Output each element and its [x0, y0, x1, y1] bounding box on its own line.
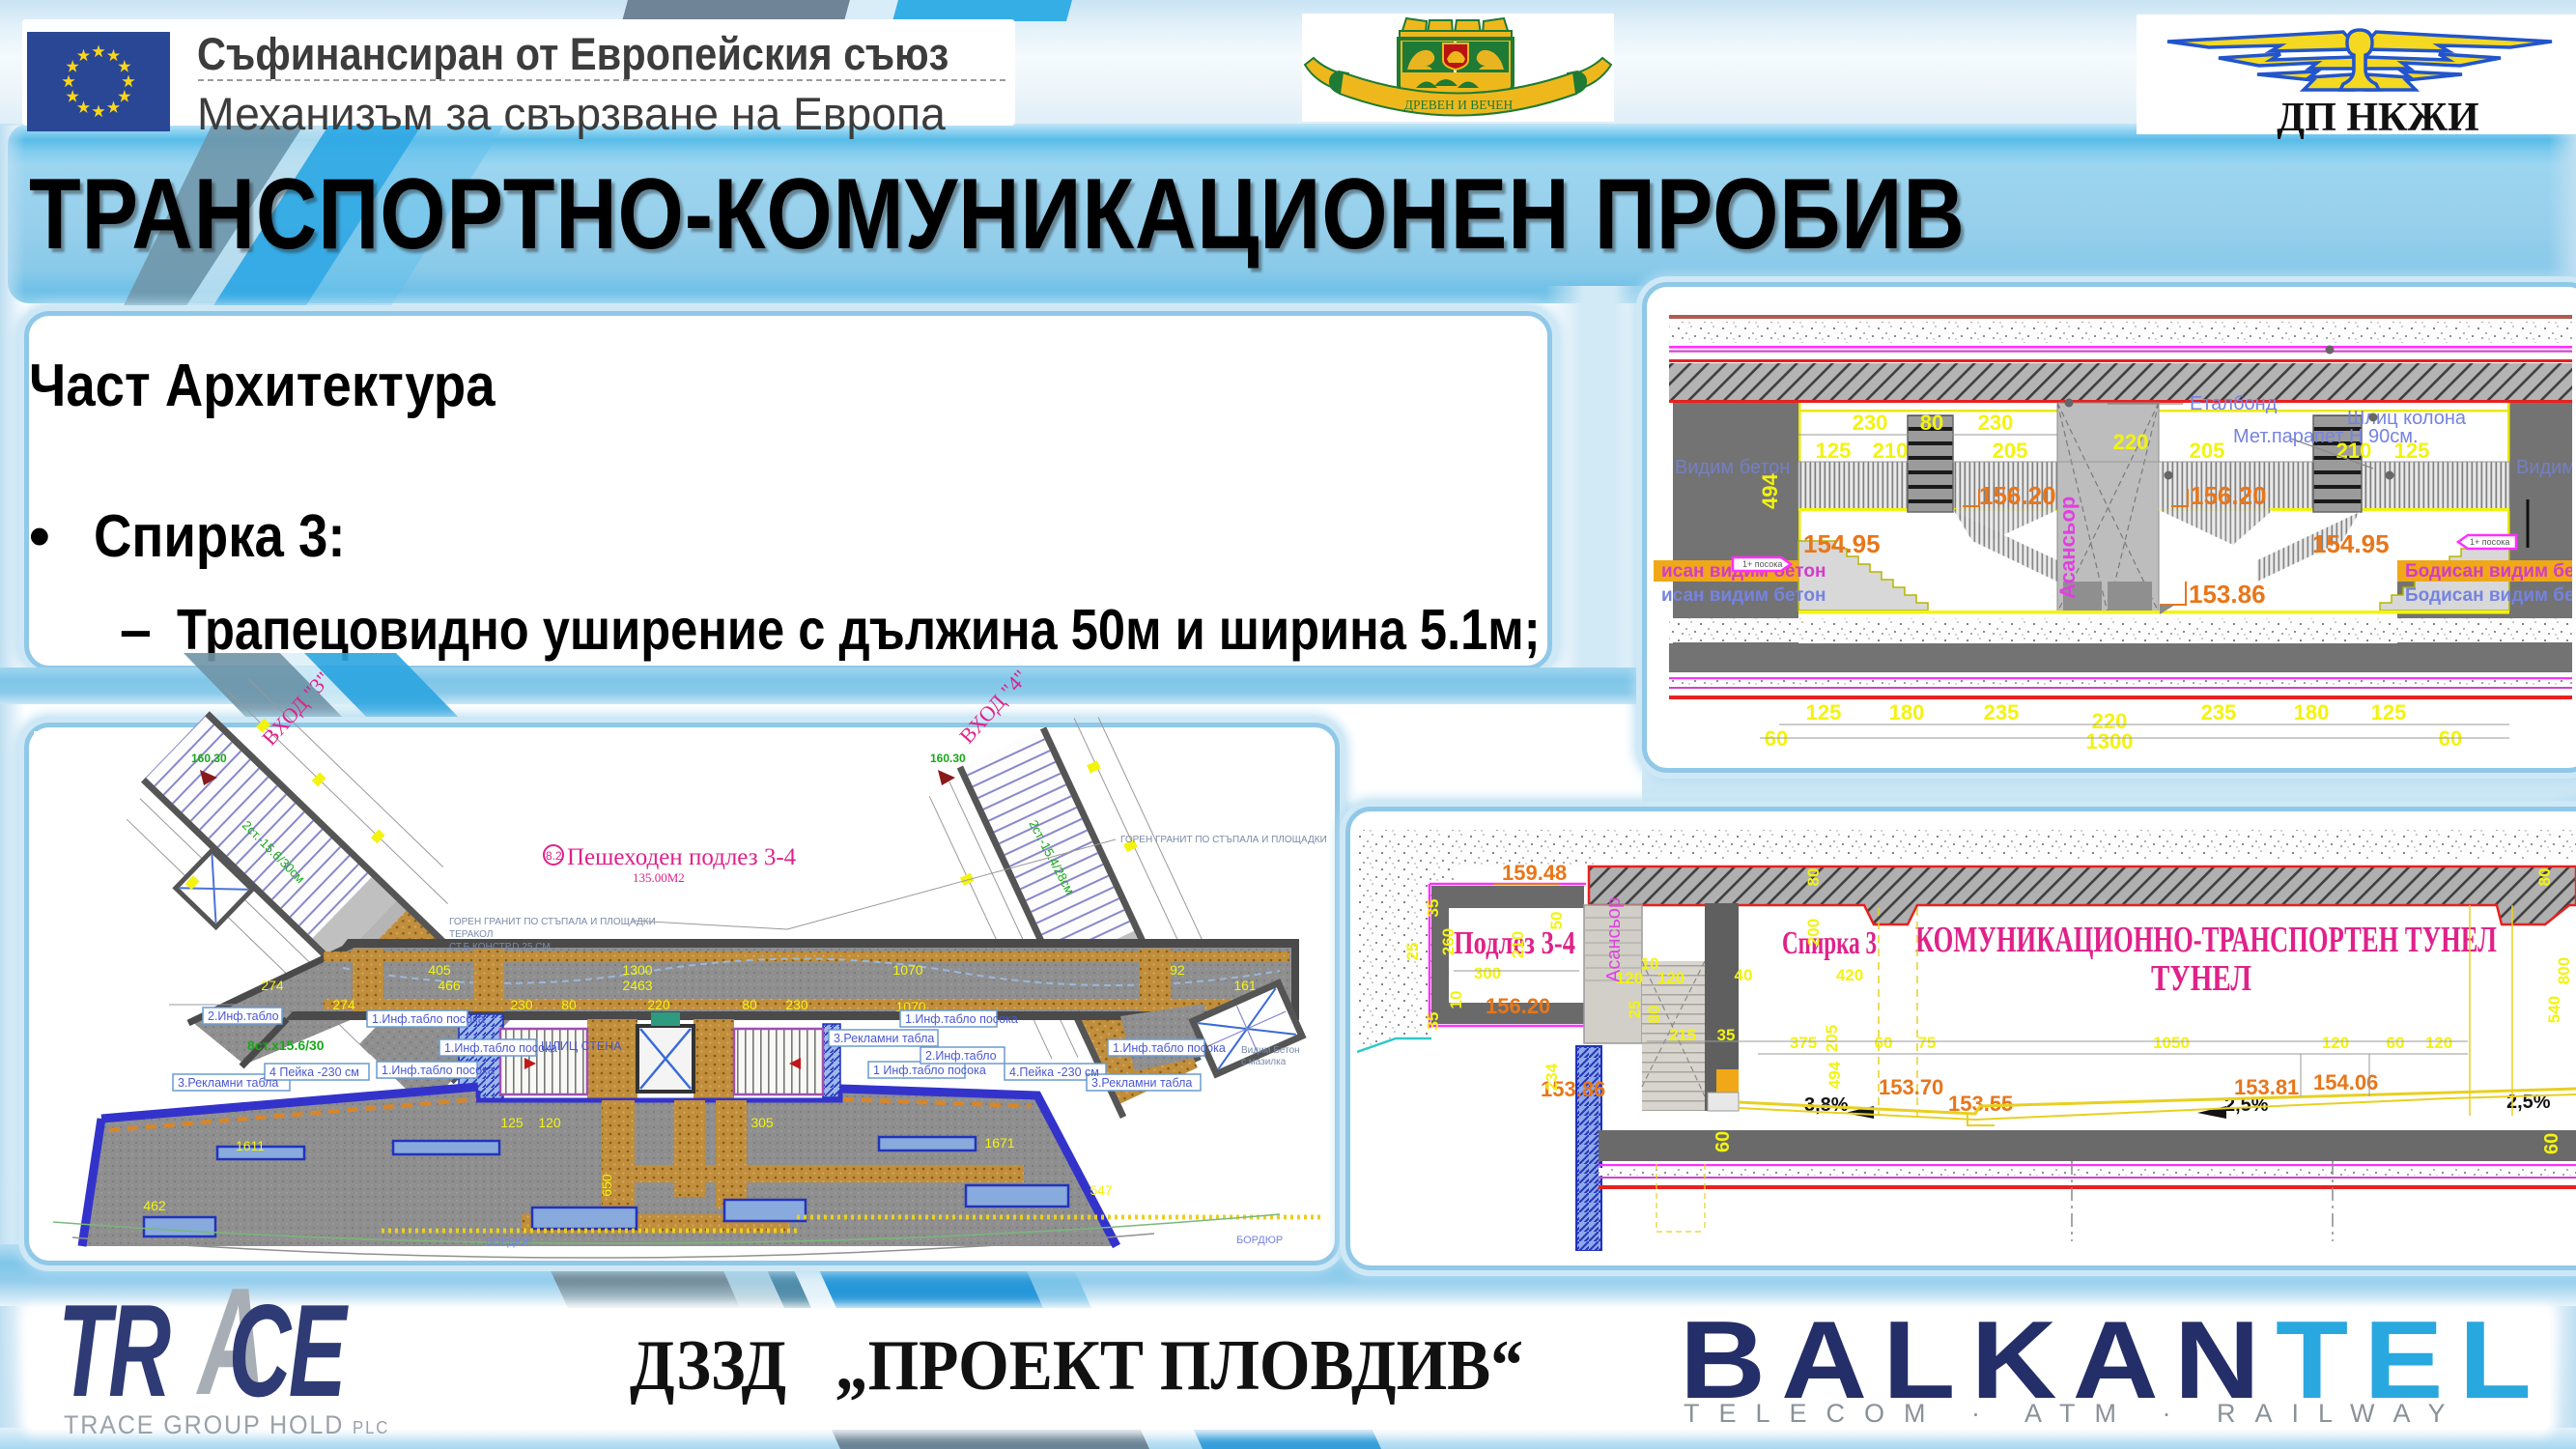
svg-text:80: 80 — [1804, 868, 1823, 887]
svg-text:260: 260 — [1439, 928, 1458, 955]
svg-text:1.Инф.табло посока: 1.Инф.табло посока — [905, 1012, 1018, 1026]
svg-text:ЩЛИЦ СТЕНА: ЩЛИЦ СТЕНА — [541, 1039, 622, 1053]
svg-text:800: 800 — [2555, 957, 2573, 984]
svg-text:159.48: 159.48 — [1502, 861, 1567, 885]
svg-text:120: 120 — [2425, 1034, 2452, 1052]
svg-text:420: 420 — [1836, 966, 1863, 984]
svg-text:35: 35 — [1424, 899, 1442, 918]
svg-text:200: 200 — [1804, 919, 1823, 946]
svg-text:Пешеходен подлез 3-4: Пешеходен подлез 3-4 — [567, 844, 797, 870]
svg-text:1.Инф.табло посока: 1.Инф.табло посока — [372, 1012, 485, 1026]
svg-text:1070: 1070 — [892, 962, 922, 978]
svg-text:125: 125 — [2371, 700, 2407, 724]
svg-text:235: 235 — [2201, 700, 2237, 724]
svg-text:3.Рекламни табла: 3.Рекламни табла — [178, 1076, 278, 1090]
svg-text:125: 125 — [500, 1115, 524, 1130]
svg-text:135.00М2: 135.00М2 — [633, 870, 685, 885]
svg-text:25: 25 — [1626, 1001, 1644, 1019]
svg-text:156.20: 156.20 — [1979, 481, 2056, 510]
svg-text:120: 120 — [1657, 969, 1684, 987]
svg-text:180: 180 — [1889, 700, 1925, 724]
svg-text:300: 300 — [1474, 964, 1501, 982]
svg-text:120: 120 — [2322, 1034, 2349, 1052]
svg-text:462: 462 — [143, 1198, 166, 1213]
svg-text:80: 80 — [1645, 1006, 1663, 1024]
svg-text:10: 10 — [1447, 991, 1465, 1009]
svg-text:25: 25 — [1403, 943, 1422, 961]
svg-text:Асансьор: Асансьор — [2055, 497, 2080, 599]
svg-text:305: 305 — [750, 1115, 774, 1130]
svg-text:КОМУНИКАЦИОННО-ТРАНСПОРТЕН ТУН: КОМУНИКАЦИОННО-ТРАНСПОРТЕН ТУНЕЛ — [1915, 920, 2497, 960]
svg-text:494: 494 — [1758, 473, 1782, 509]
svg-text:205: 205 — [1823, 1025, 1841, 1052]
svg-text:180: 180 — [2294, 700, 2330, 724]
svg-text:80: 80 — [561, 997, 577, 1012]
svg-text:Бодисан видим бетон: Бодисан видим бетон — [2405, 585, 2572, 606]
svg-text:220: 220 — [647, 997, 670, 1012]
svg-text:60: 60 — [2387, 1034, 2405, 1052]
svg-text:405: 405 — [428, 962, 451, 978]
svg-text:БОРДЮР: БОРДЮР — [486, 1236, 532, 1248]
svg-text:205: 205 — [1993, 439, 2028, 463]
svg-text:156.20: 156.20 — [1486, 994, 1550, 1018]
svg-text:1+ посока: 1+ посока — [1742, 559, 1782, 569]
svg-text:8ст.х15.6/30: 8ст.х15.6/30 — [247, 1037, 325, 1053]
svg-text:60: 60 — [1875, 1034, 1893, 1052]
svg-text:Мет.парапет Н 90см.: Мет.парапет Н 90см. — [2233, 426, 2419, 447]
svg-text:60: 60 — [2541, 1133, 2562, 1154]
svg-text:1.Инф.табло посока: 1.Инф.табло посока — [382, 1064, 495, 1077]
svg-text:ТУНЕЛ: ТУНЕЛ — [2151, 958, 2251, 999]
svg-text:274: 274 — [332, 997, 355, 1012]
svg-text:230: 230 — [785, 997, 808, 1012]
svg-text:4 Пейка -230 см: 4 Пейка -230 см — [269, 1065, 359, 1079]
svg-text:274: 274 — [261, 978, 284, 993]
svg-text:153.70: 153.70 — [1879, 1075, 1943, 1099]
svg-text:153.86: 153.86 — [2189, 580, 2266, 609]
svg-text:1 Инф.табло посока: 1 Инф.табло посока — [873, 1064, 986, 1077]
svg-text:547: 547 — [1090, 1182, 1113, 1198]
svg-text:35: 35 — [1424, 1012, 1442, 1031]
svg-text:234: 234 — [1543, 1063, 1561, 1091]
svg-text:3.Рекламни табла: 3.Рекламни табла — [1091, 1076, 1192, 1090]
svg-text:650: 650 — [599, 1174, 614, 1197]
svg-text:3.Рекламни табла: 3.Рекламни табла — [834, 1032, 934, 1045]
svg-text:230: 230 — [510, 997, 533, 1012]
svg-text:466: 466 — [438, 978, 461, 993]
svg-text:8.2: 8.2 — [546, 849, 562, 863]
svg-text:60: 60 — [1713, 1131, 1734, 1152]
svg-text:80: 80 — [1920, 411, 1943, 435]
svg-text:125: 125 — [1816, 439, 1852, 463]
svg-text:Еталбонд: Еталбонд — [2190, 393, 2278, 414]
svg-text:4.Пейка -230 см: 4.Пейка -230 см — [1009, 1065, 1099, 1079]
svg-text:154.95: 154.95 — [2312, 529, 2390, 558]
svg-text:80: 80 — [742, 997, 757, 1012]
svg-text:БОРДЮР: БОРДЮР — [1236, 1235, 1283, 1246]
svg-text:375: 375 — [1790, 1034, 1817, 1052]
svg-text:235: 235 — [1984, 700, 2020, 724]
svg-text:156.20: 156.20 — [2190, 481, 2267, 510]
svg-text:Видим бетон: Видим бетон — [2516, 457, 2572, 478]
svg-text:160.30: 160.30 — [191, 752, 227, 765]
svg-text:125: 125 — [1806, 700, 1842, 724]
svg-text:1611: 1611 — [236, 1138, 265, 1153]
svg-text:2.Инф.табло: 2.Инф.табло — [208, 1009, 279, 1023]
svg-text:ГОРЕН ГРАНИТ ПО СТЪПАЛА И ПЛОЩ: ГОРЕН ГРАНИТ ПО СТЪПАЛА И ПЛОЩАДКИ — [1120, 835, 1327, 845]
svg-text:1.Инф.табло посока: 1.Инф.табло посока — [1113, 1041, 1226, 1055]
svg-text:50: 50 — [1547, 912, 1566, 930]
svg-text:80: 80 — [2535, 868, 2554, 887]
svg-text:ДРЕВЕН И ВЕЧЕН: ДРЕВЕН И ВЕЧЕН — [1404, 98, 1514, 112]
svg-text:Видим бетон: Видим бетон — [1675, 457, 1790, 478]
svg-text:1671: 1671 — [984, 1135, 1014, 1151]
svg-text:154.95: 154.95 — [1803, 529, 1881, 558]
svg-text:220: 220 — [2113, 430, 2149, 454]
svg-text:Спирка 3: Спирка 3 — [1782, 925, 1877, 961]
svg-text:ТЕРАКОЛ: ТЕРАКОЛ — [449, 929, 493, 940]
svg-text:154.06: 154.06 — [2313, 1070, 2378, 1094]
svg-text:1050: 1050 — [2153, 1034, 2190, 1052]
svg-text:120: 120 — [538, 1115, 561, 1130]
svg-text:10: 10 — [1641, 954, 1659, 973]
svg-text:1+ посока: 1+ посока — [2470, 537, 2509, 547]
svg-text:230: 230 — [1853, 411, 1888, 435]
svg-text:Видим Бетон: Видим Бетон — [1241, 1045, 1300, 1056]
svg-text:494: 494 — [1826, 1061, 1844, 1089]
svg-text:210: 210 — [1873, 439, 1909, 463]
svg-text:исан видим бетон: исан видим бетон — [1661, 585, 1826, 606]
svg-text:1300: 1300 — [2086, 729, 2134, 753]
svg-text:ГОРЕН ГРАНИТ ПО СТЪПАЛА И ПЛОЩ: ГОРЕН ГРАНИТ ПО СТЪПАЛА И ПЛОЩАДКИ — [449, 917, 656, 927]
svg-text:160.30: 160.30 — [930, 752, 966, 765]
svg-text:с мазилка: с мазилка — [1241, 1057, 1287, 1067]
svg-text:205: 205 — [2190, 439, 2225, 463]
svg-text:2463: 2463 — [622, 978, 652, 993]
svg-text:2.Инф.табло: 2.Инф.табло — [925, 1049, 997, 1063]
svg-text:120: 120 — [1616, 969, 1643, 987]
svg-text:1300: 1300 — [622, 962, 652, 978]
svg-text:СТ.Б.КОНСТР.D 25 СМ: СТ.Б.КОНСТР.D 25 СМ — [449, 942, 551, 952]
svg-text:230: 230 — [1978, 411, 2014, 435]
svg-text:40: 40 — [1735, 966, 1753, 984]
svg-text:540: 540 — [2545, 996, 2563, 1023]
svg-text:75: 75 — [1918, 1034, 1937, 1052]
svg-text:Бодисан видим бетон: Бодисан видим бетон — [2405, 561, 2572, 582]
svg-text:210: 210 — [1509, 931, 1527, 958]
